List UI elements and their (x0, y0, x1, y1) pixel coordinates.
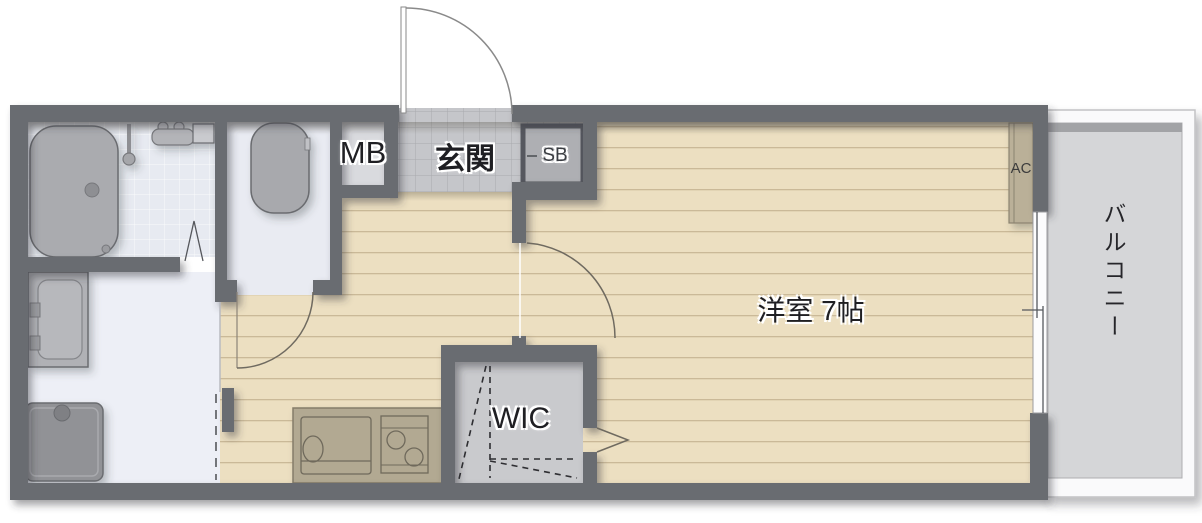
floor-plan-canvas: 玄関 MB SB WIC 洋室 7帖 AC バルコニー (0, 0, 1202, 523)
bathtub (30, 126, 118, 257)
meter-box-label: MB (331, 135, 395, 171)
balcony-label: バルコニー (1096, 202, 1130, 412)
wic-label: WIC (468, 402, 574, 436)
shoe-box-label: SB (534, 145, 576, 167)
ac-label: AC (1004, 160, 1038, 177)
vanity-washbasin (28, 272, 88, 367)
western-room-label: 洋室 7帖 (708, 289, 914, 329)
kitchen-counter (293, 408, 445, 483)
washing-machine-pan (25, 403, 103, 481)
entrance-label: 玄関 (402, 134, 528, 178)
toilet (251, 123, 310, 213)
mirror-cabinet (193, 124, 214, 143)
floor-plan-drawing (0, 0, 1202, 523)
entrance-door-swing (401, 7, 512, 114)
